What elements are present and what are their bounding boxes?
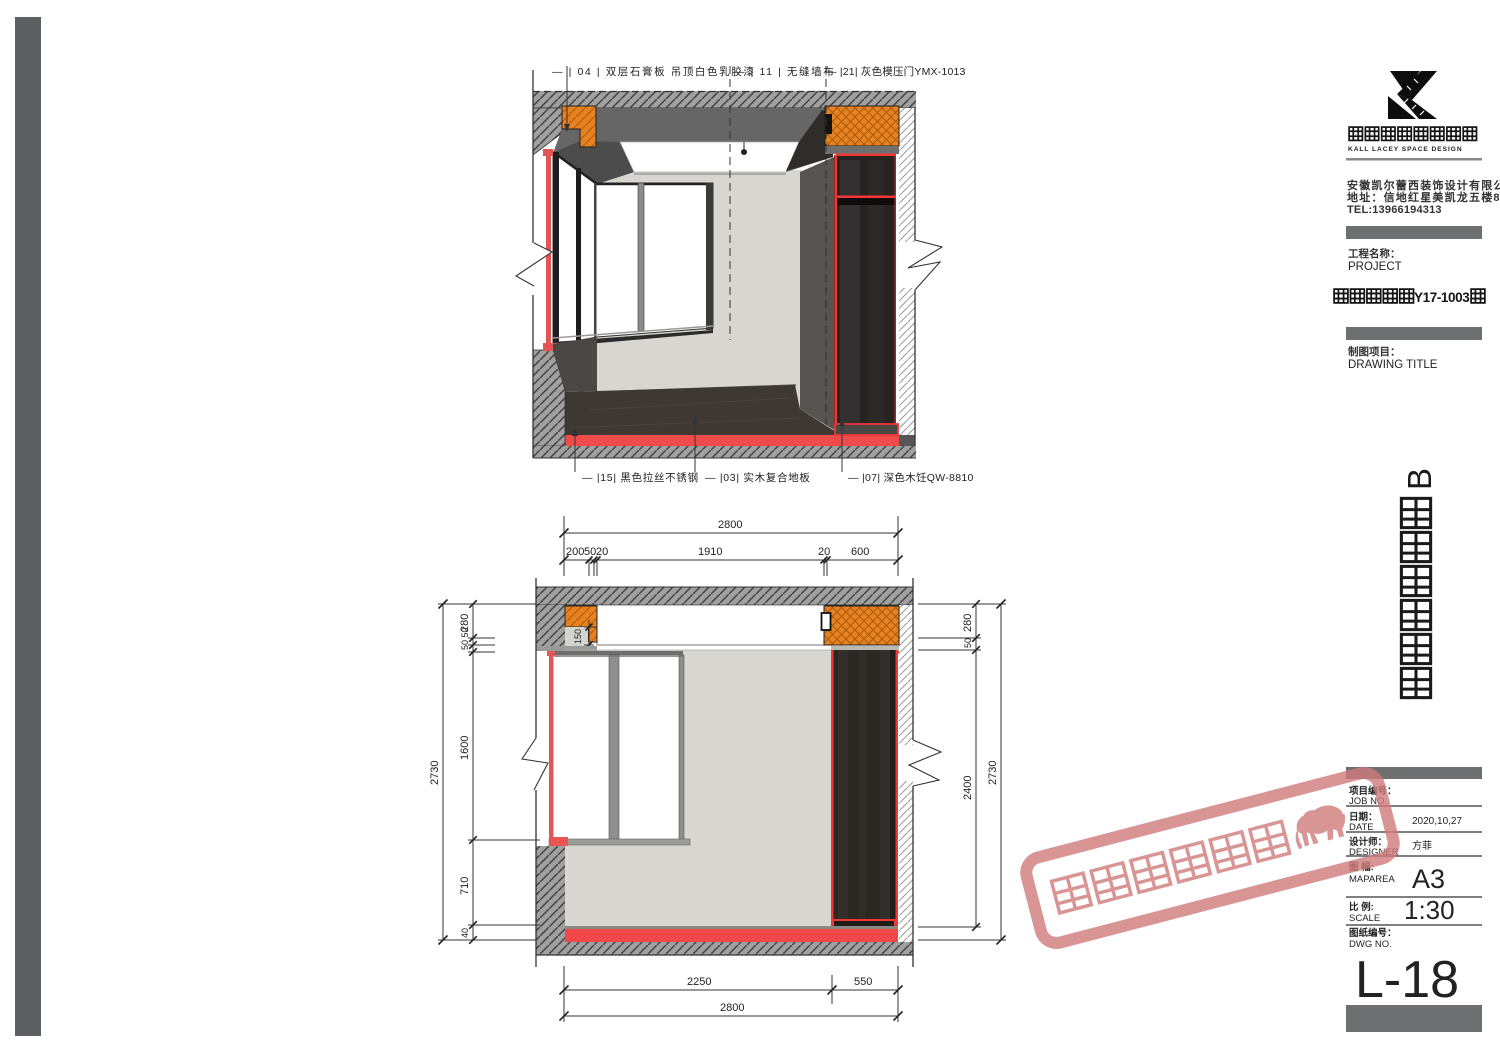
- svg-text:TEL:13966194313: TEL:13966194313: [1347, 204, 1442, 216]
- svg-text:20: 20: [818, 546, 830, 558]
- svg-text:1600: 1600: [459, 736, 471, 760]
- svg-text:20: 20: [596, 546, 608, 558]
- svg-text:2730: 2730: [987, 761, 999, 785]
- svg-text:B: B: [1401, 468, 1438, 490]
- svg-text:200: 200: [566, 546, 584, 558]
- svg-text:— |03| 实木复合地板: — |03| 实木复合地板: [705, 471, 811, 484]
- svg-text:1910: 1910: [698, 546, 722, 558]
- svg-text:SCALE: SCALE: [1349, 913, 1380, 924]
- svg-text:方菲: 方菲: [1412, 839, 1432, 852]
- svg-text:550: 550: [854, 976, 872, 988]
- svg-text:安徽凯尔蕾西装饰设计有限公司: 安徽凯尔蕾西装饰设计有限公司: [1347, 178, 1500, 192]
- svg-text:50: 50: [584, 546, 596, 558]
- svg-text:2800: 2800: [720, 1002, 744, 1014]
- svg-text:MAPAREA: MAPAREA: [1349, 874, 1395, 885]
- svg-text:DATE: DATE: [1349, 822, 1374, 833]
- svg-text:150: 150: [573, 629, 583, 644]
- svg-text:2250: 2250: [687, 976, 711, 988]
- svg-text:— |07| 深色木饪QW-8810: — |07| 深色木饪QW-8810: [848, 471, 974, 484]
- svg-text:280: 280: [962, 614, 974, 632]
- svg-text:2800: 2800: [718, 519, 742, 531]
- svg-text:1:30: 1:30: [1404, 895, 1455, 925]
- svg-text:2020,10,27: 2020,10,27: [1412, 816, 1462, 827]
- svg-text:— |15| 黑色拉丝不锈钢: — |15| 黑色拉丝不锈钢: [582, 471, 699, 484]
- svg-text:KALL LACEY SPACE DESIGN: KALL LACEY SPACE DESIGN: [1348, 146, 1463, 153]
- svg-text:比 例:: 比 例:: [1349, 901, 1374, 913]
- svg-text:地址：信地红星美凯龙五楼8005-2: 地址：信地红星美凯龙五楼8005-2: [1347, 190, 1500, 204]
- svg-text:L-18: L-18: [1355, 951, 1459, 1009]
- svg-text:工程名称：: 工程名称：: [1348, 247, 1401, 260]
- svg-text:— | 11 | 无缝墙布: — | 11 | 无缝墙布: [734, 65, 835, 78]
- svg-text:710: 710: [459, 877, 471, 895]
- svg-text:50: 50: [963, 638, 973, 648]
- svg-text:DRAWING TITLE: DRAWING TITLE: [1348, 359, 1438, 371]
- svg-text:— | 04 | 双层石膏板 吊顶白色乳胶漆: — | 04 | 双层石膏板 吊顶白色乳胶漆: [552, 65, 755, 78]
- svg-text:Y17-1003: Y17-1003: [1414, 290, 1470, 305]
- svg-text:600: 600: [851, 546, 869, 558]
- svg-text:2400: 2400: [962, 776, 974, 800]
- svg-text:PROJECT: PROJECT: [1348, 261, 1402, 273]
- svg-text:A3: A3: [1412, 864, 1445, 894]
- svg-text:50 50: 50 50: [460, 627, 470, 650]
- svg-text:图纸编号：: 图纸编号：: [1349, 927, 1397, 939]
- svg-text:2730: 2730: [429, 761, 441, 785]
- svg-text:40: 40: [460, 928, 470, 938]
- svg-text:制图项目：: 制图项目：: [1348, 345, 1401, 358]
- svg-text:DWG NO.: DWG NO.: [1349, 939, 1392, 950]
- svg-text:— |21| 灰色模压门YMX-1013: — |21| 灰色模压门YMX-1013: [826, 65, 966, 78]
